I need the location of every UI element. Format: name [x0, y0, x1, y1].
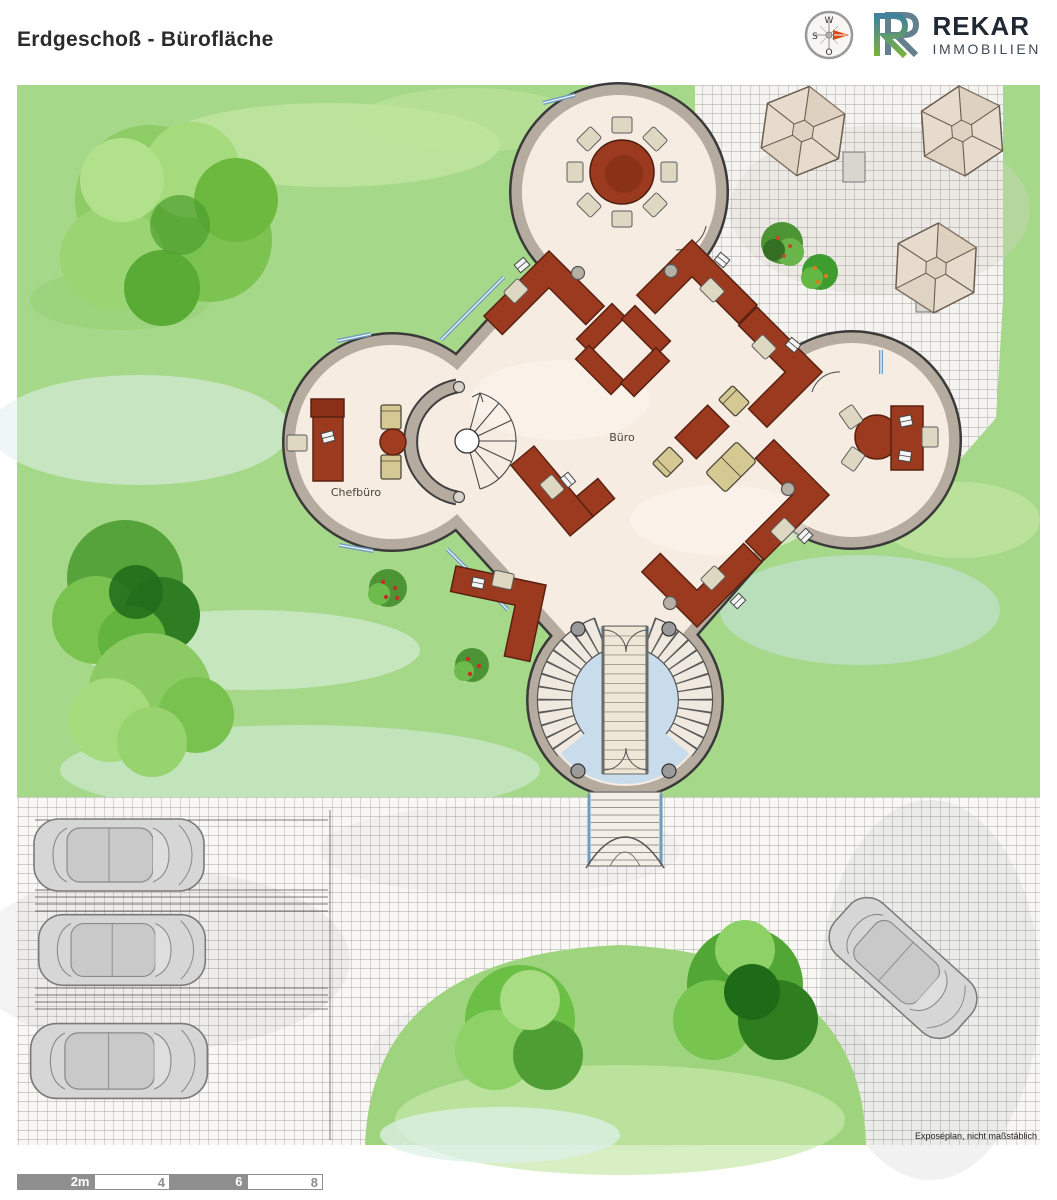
conference-set — [567, 117, 677, 227]
expose-page: Erdgeschoß - Bürofläche W S O — [0, 0, 1057, 1200]
car-3 — [31, 1024, 208, 1099]
floor-plan-svg: Chefbüro Büro — [0, 0, 1057, 1200]
floor-plan-canvas: Chefbüro Büro — [0, 0, 1057, 1200]
plan-footnote: Exposéplan, nicht maßstäblich — [915, 1131, 1037, 1141]
scale-bar: 2m 4 6 8 — [17, 1174, 323, 1190]
scale-segment: 6 — [170, 1174, 247, 1190]
room-label-buero: Büro — [609, 431, 635, 444]
entrance-porch — [586, 792, 664, 868]
scale-segment: 2m — [17, 1174, 94, 1190]
car-2 — [39, 915, 206, 986]
entrance-walkway — [603, 626, 647, 774]
room-label-chefbuero: Chefbüro — [331, 486, 382, 499]
car-1 — [34, 819, 204, 891]
scale-segment: 4 — [94, 1174, 171, 1190]
scale-segment: 8 — [247, 1174, 324, 1190]
